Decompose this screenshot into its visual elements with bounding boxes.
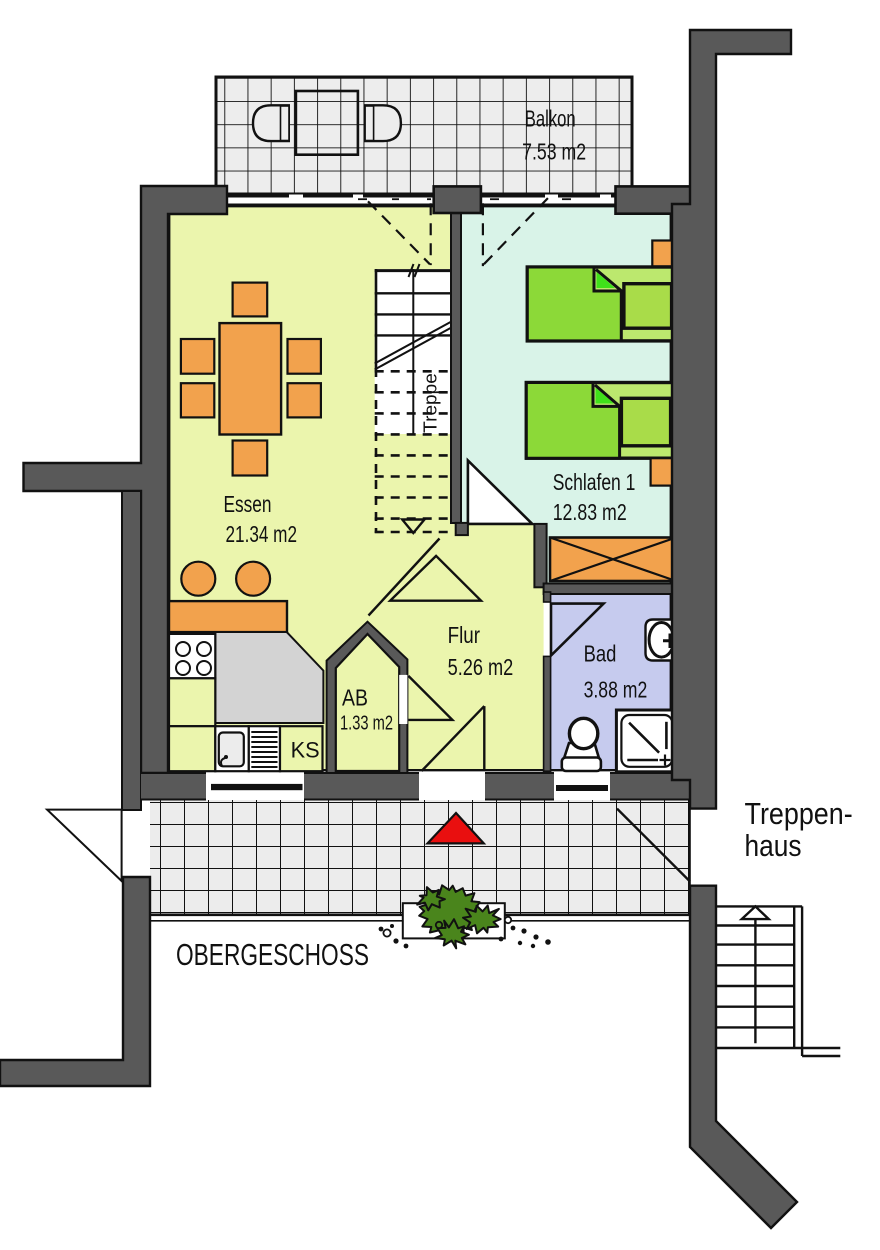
svg-text:Flur: Flur — [448, 622, 481, 648]
svg-text:5.26 m2: 5.26 m2 — [448, 654, 514, 680]
svg-text:Treppen-: Treppen- — [745, 796, 853, 831]
svg-text:Balkon: Balkon — [525, 106, 576, 132]
svg-text:OBERGESCHOSS: OBERGESCHOSS — [176, 938, 369, 972]
svg-text:12.83 m2: 12.83 m2 — [553, 499, 627, 525]
svg-text:Schlafen 1: Schlafen 1 — [553, 469, 636, 495]
svg-text:Bad: Bad — [584, 641, 617, 667]
svg-text:7.53 m2: 7.53 m2 — [522, 139, 586, 165]
svg-text:KS: KS — [291, 738, 320, 763]
svg-text:3.88 m2: 3.88 m2 — [584, 677, 648, 703]
svg-text:1.33 m2: 1.33 m2 — [340, 713, 393, 735]
svg-text:haus: haus — [745, 828, 802, 863]
svg-text:AB: AB — [342, 685, 368, 711]
svg-text:21.34 m2: 21.34 m2 — [226, 521, 298, 547]
svg-text:Treppe: Treppe — [421, 373, 441, 433]
svg-text:Essen: Essen — [224, 491, 272, 517]
